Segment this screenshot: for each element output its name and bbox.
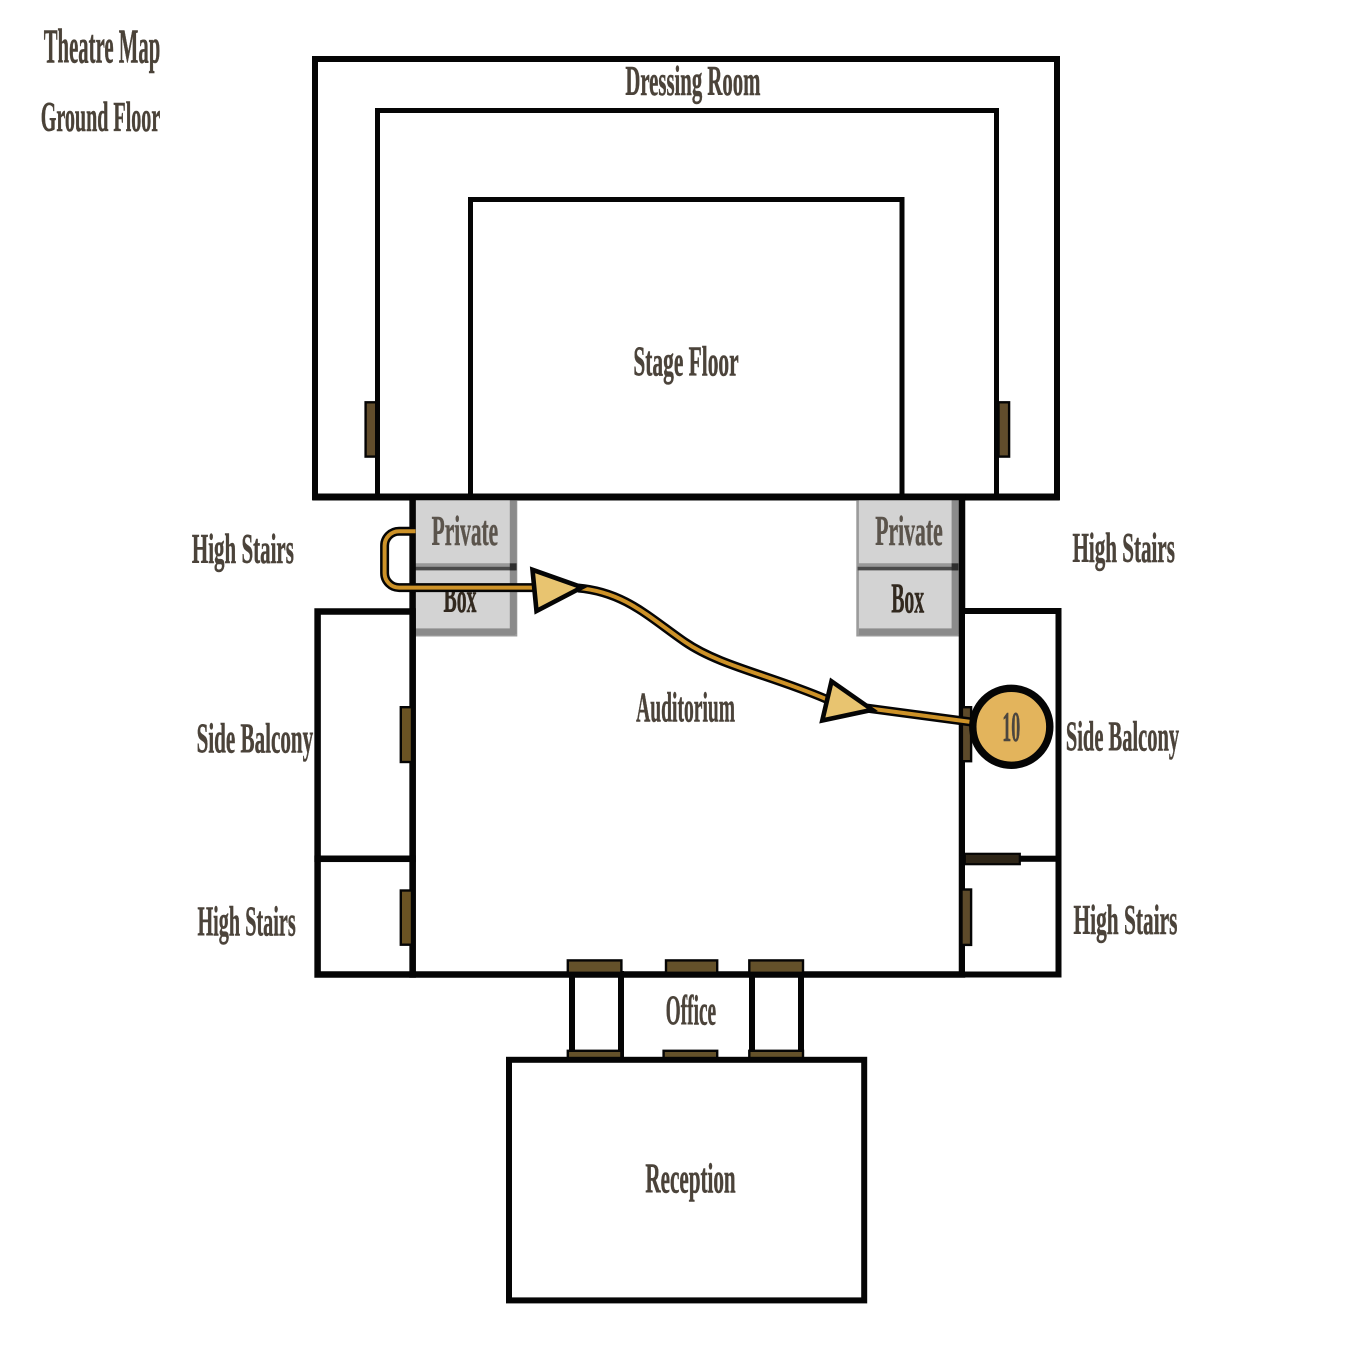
svg-text:10: 10	[1002, 704, 1020, 751]
svg-text:High Stairs: High Stairs	[192, 526, 294, 573]
svg-text:Private: Private	[432, 508, 499, 555]
svg-text:Stage Floor: Stage Floor	[633, 338, 738, 385]
svg-text:Side Balcony: Side Balcony	[1066, 713, 1179, 760]
svg-text:Theatre Map: Theatre Map	[44, 19, 161, 74]
svg-text:Ground Floor: Ground Floor	[41, 94, 161, 141]
svg-text:Private: Private	[875, 508, 942, 555]
svg-text:High Stairs: High Stairs	[1074, 897, 1178, 944]
svg-text:Box: Box	[444, 575, 477, 622]
svg-text:High Stairs: High Stairs	[1072, 525, 1175, 572]
svg-text:Auditorium: Auditorium	[636, 684, 735, 731]
svg-text:Reception: Reception	[645, 1156, 735, 1203]
svg-text:Box: Box	[891, 575, 924, 622]
svg-text:High Stairs: High Stairs	[197, 899, 295, 946]
svg-text:Side Balcony: Side Balcony	[197, 715, 314, 762]
svg-text:Office: Office	[666, 987, 717, 1034]
svg-text:Dressing Room: Dressing Room	[625, 58, 760, 105]
